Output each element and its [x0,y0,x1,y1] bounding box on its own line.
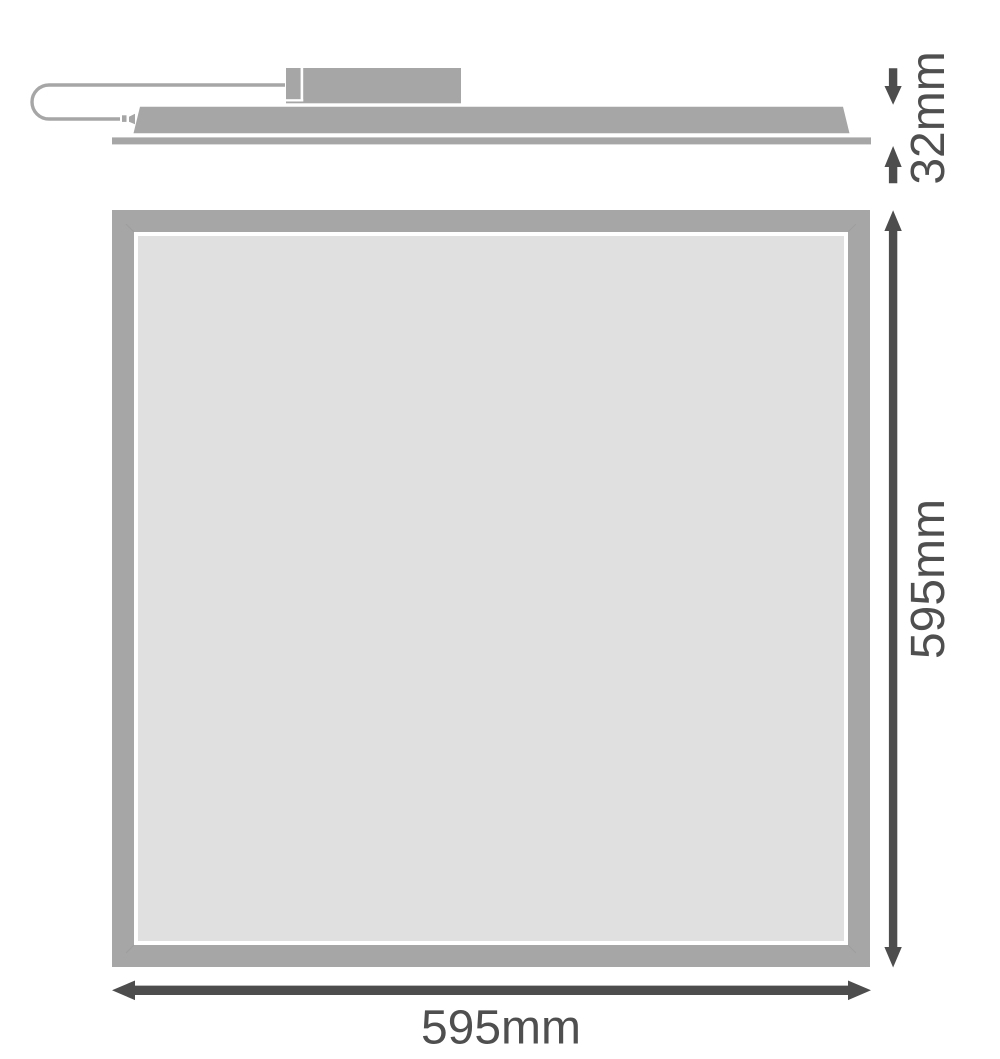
svg-text:595mm: 595mm [902,499,955,659]
svg-text:32mm: 32mm [902,51,955,184]
svg-text:595mm: 595mm [421,1002,581,1055]
